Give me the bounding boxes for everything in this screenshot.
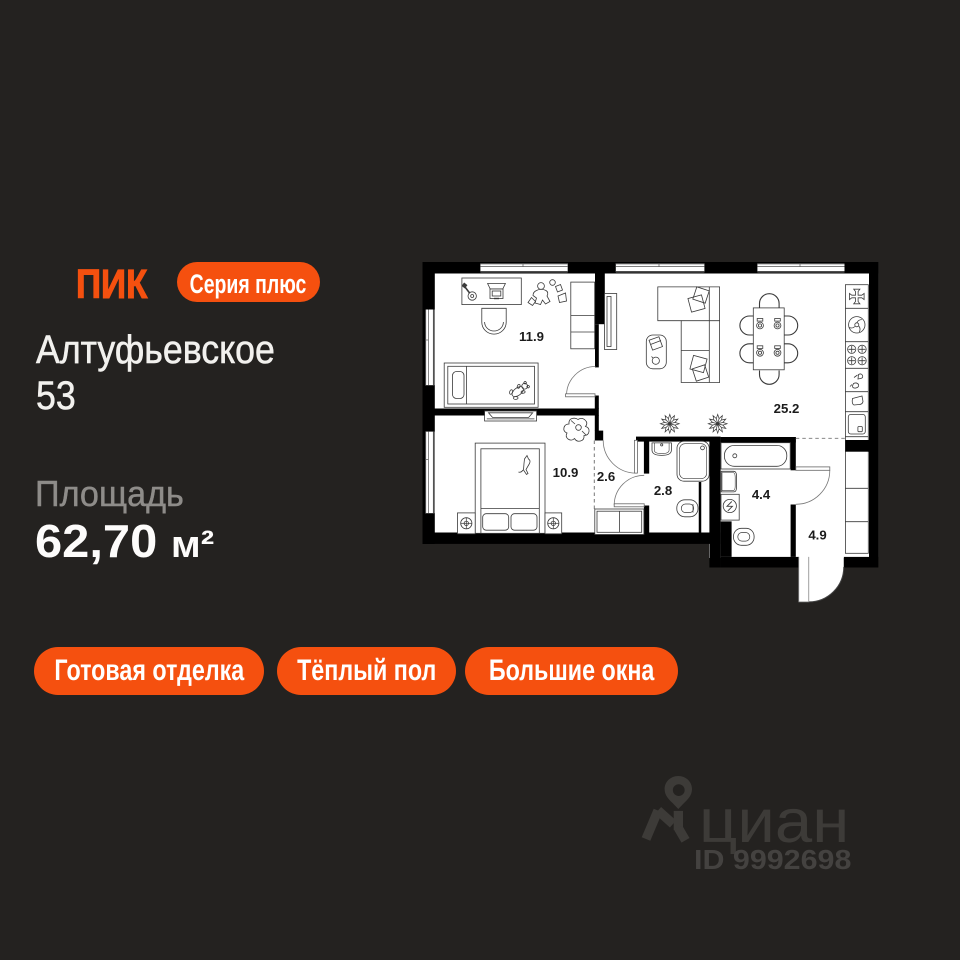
- svg-text:10.9: 10.9: [553, 465, 579, 480]
- svg-text:25.2: 25.2: [774, 401, 800, 416]
- svg-text:4.4: 4.4: [752, 487, 771, 502]
- svg-text:2.6: 2.6: [597, 469, 615, 484]
- svg-text:2.8: 2.8: [654, 483, 672, 498]
- svg-text:4.9: 4.9: [808, 528, 826, 543]
- svg-text:11.9: 11.9: [519, 329, 544, 344]
